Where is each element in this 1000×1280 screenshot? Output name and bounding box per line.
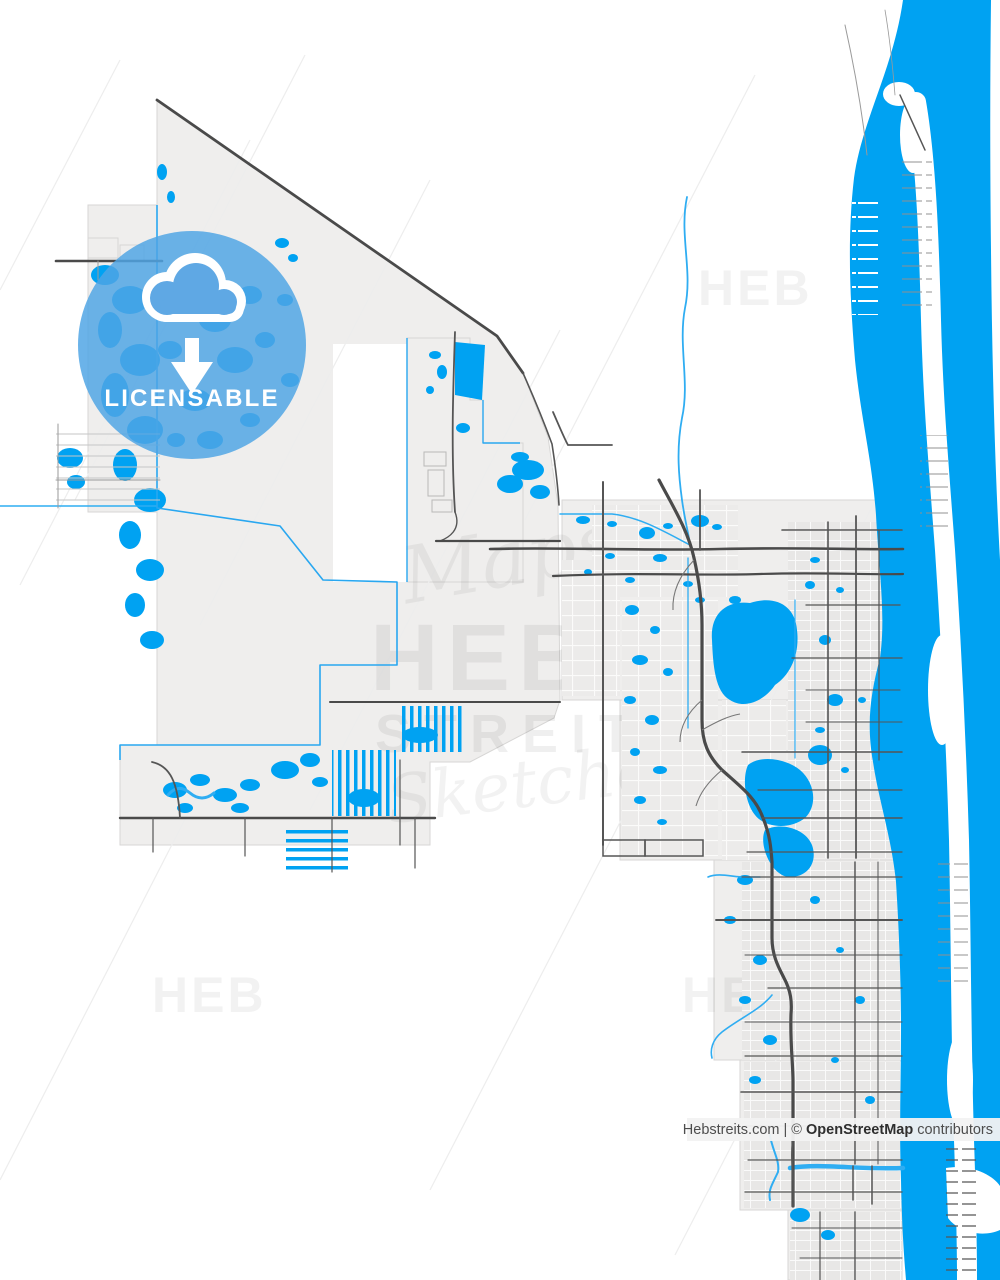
map-preview: Maps HEB STREITS Sketches HEB HEB HEB [0, 0, 1000, 1280]
watermark-heb-topright: HEB [698, 260, 813, 316]
attribution-osm-link[interactable]: OpenStreetMap [806, 1122, 913, 1138]
badge-label: LICENSABLE [104, 385, 279, 412]
watermark-heb-bottomleft: HEB [152, 967, 267, 1023]
island-streets [902, 150, 932, 310]
attribution-bar: Hebstreits.com | © OpenStreetMap contrib… [687, 1118, 1000, 1141]
watermark-heb: HEB [370, 605, 595, 711]
city-map: Maps HEB STREITS Sketches HEB HEB HEB [0, 0, 1000, 1280]
shore-docks [852, 200, 878, 315]
licensable-badge: LICENSABLE [78, 231, 306, 459]
attribution-divider: | © [779, 1122, 806, 1138]
attribution-site-link[interactable]: Hebstreits.com [683, 1122, 780, 1138]
attribution-suffix: contributors [913, 1122, 993, 1138]
